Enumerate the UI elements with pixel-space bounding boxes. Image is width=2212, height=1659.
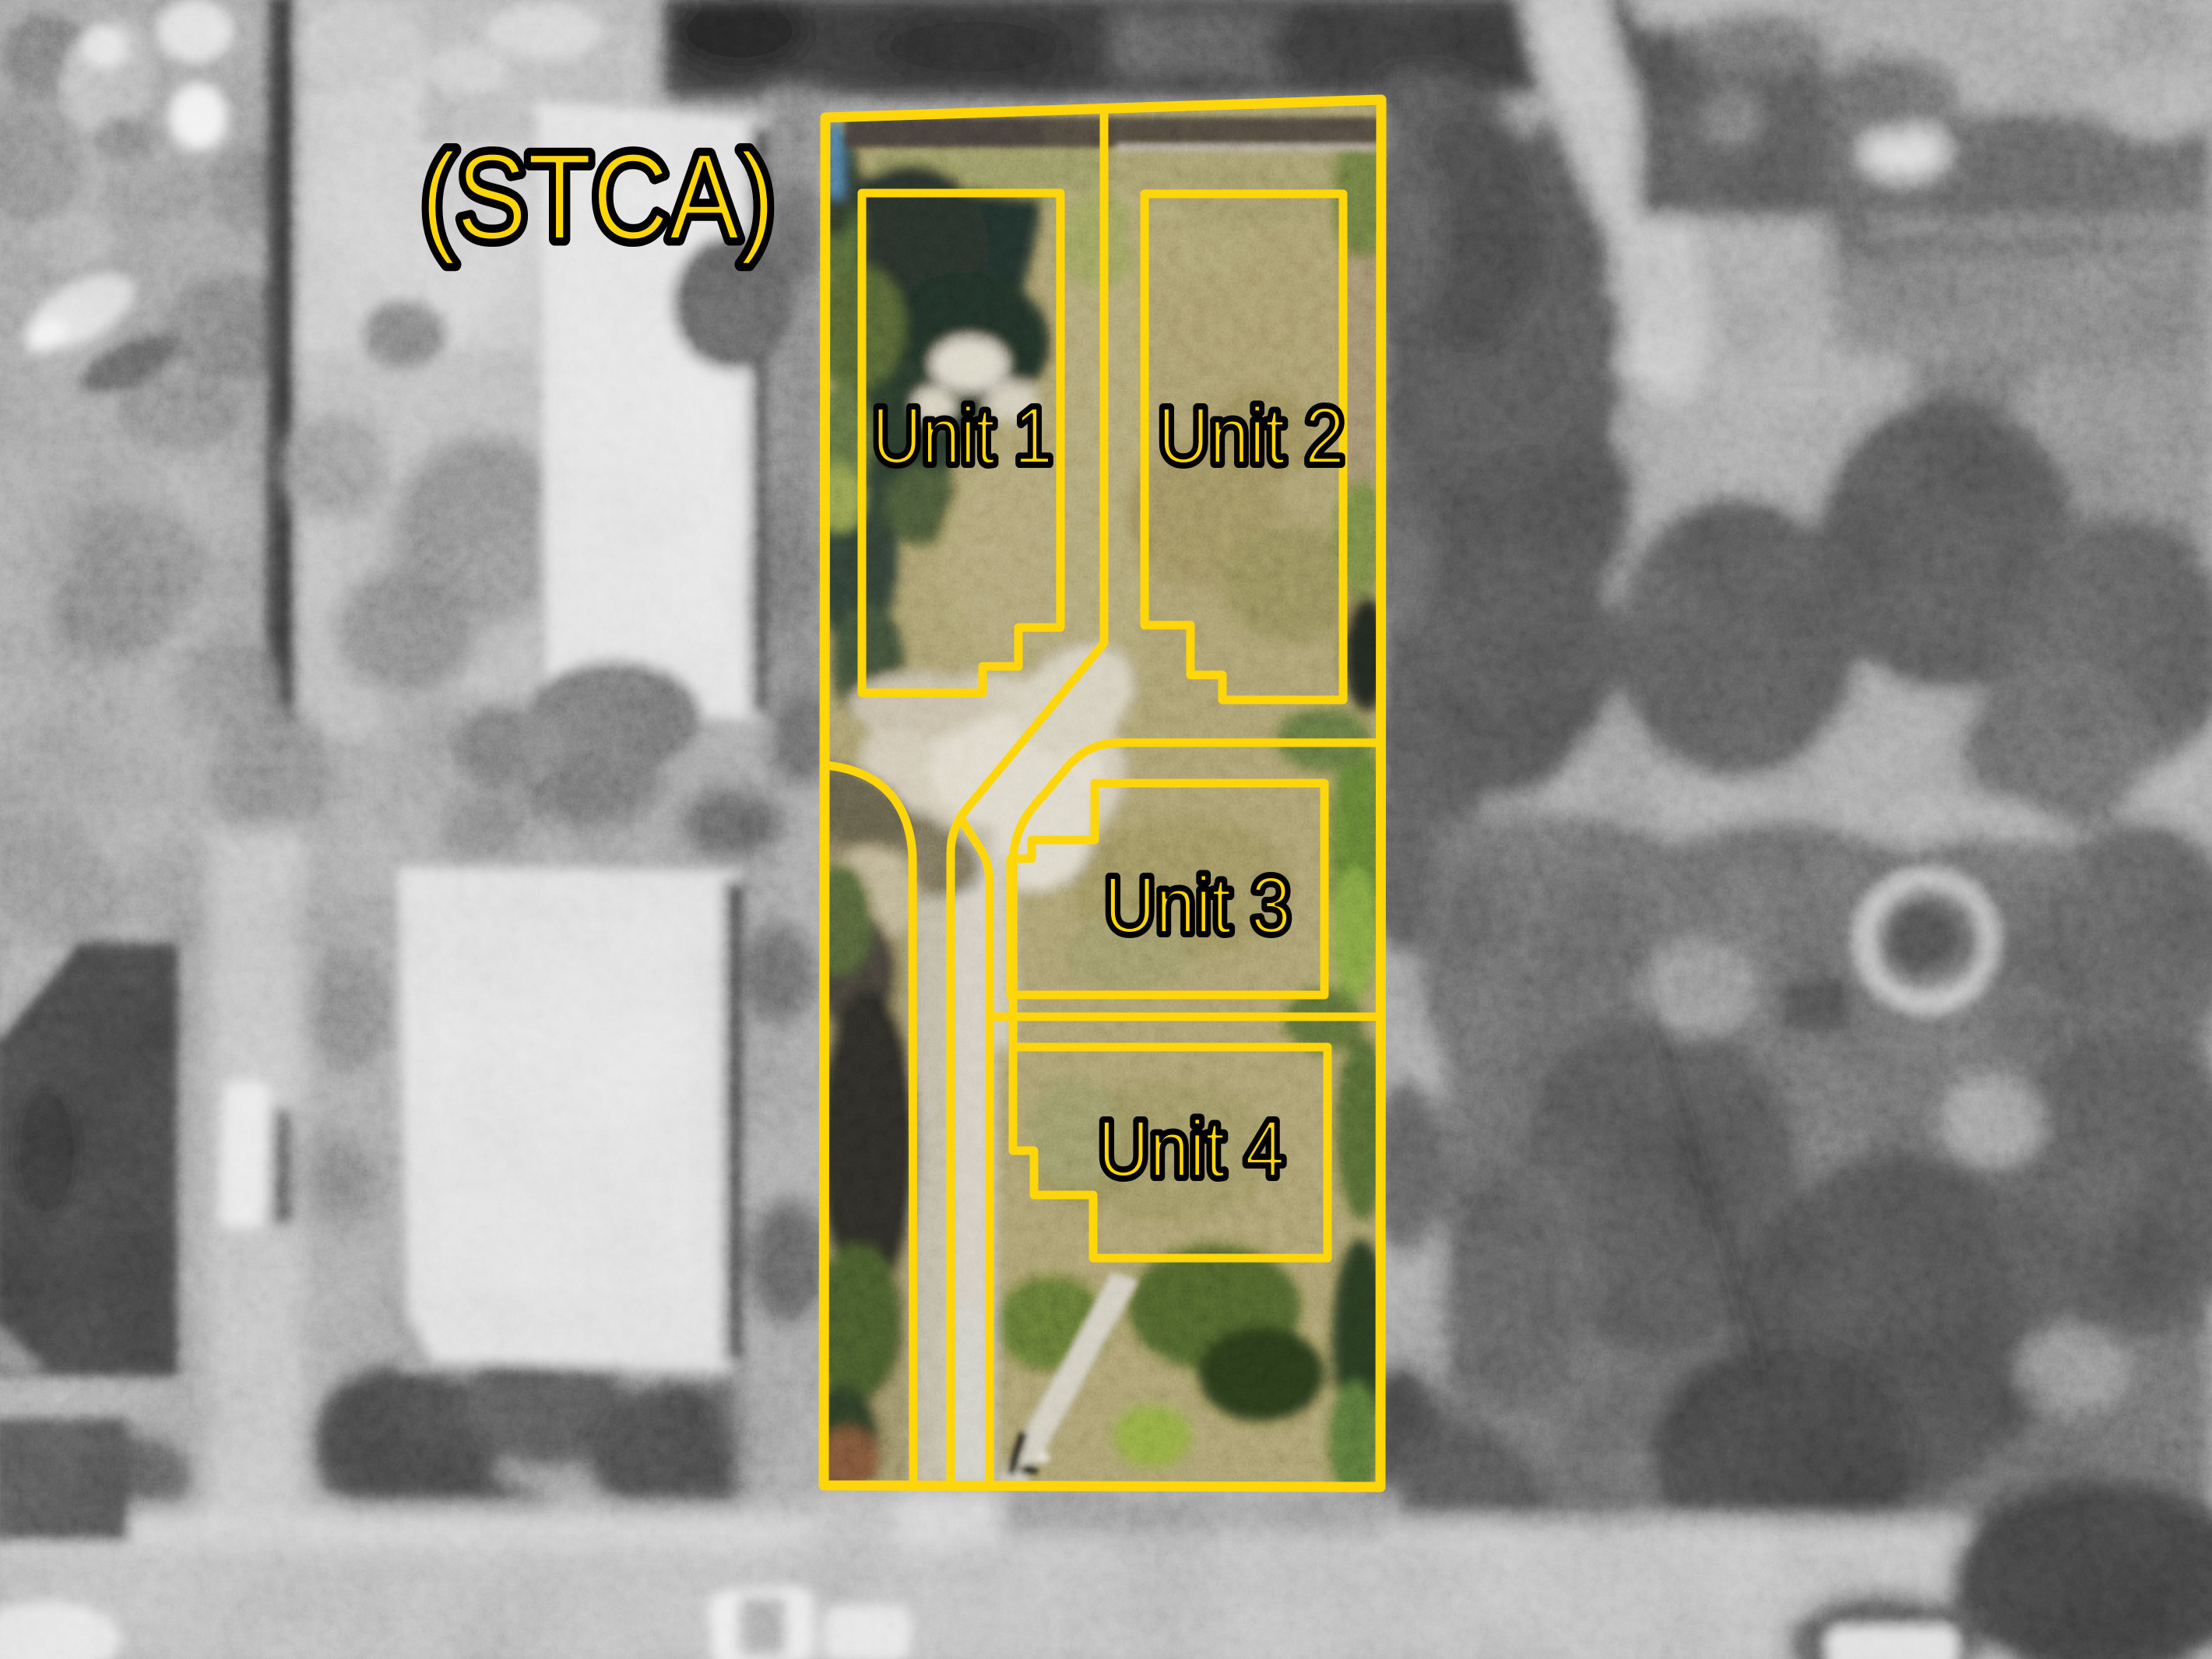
svg-text:Unit 3: Unit 3: [1104, 860, 1291, 950]
svg-text:(STCA): (STCA): [421, 128, 775, 265]
svg-text:Unit 2: Unit 2: [1158, 391, 1345, 480]
svg-text:Unit 4: Unit 4: [1098, 1104, 1285, 1193]
svg-text:Unit 1: Unit 1: [872, 391, 1053, 480]
